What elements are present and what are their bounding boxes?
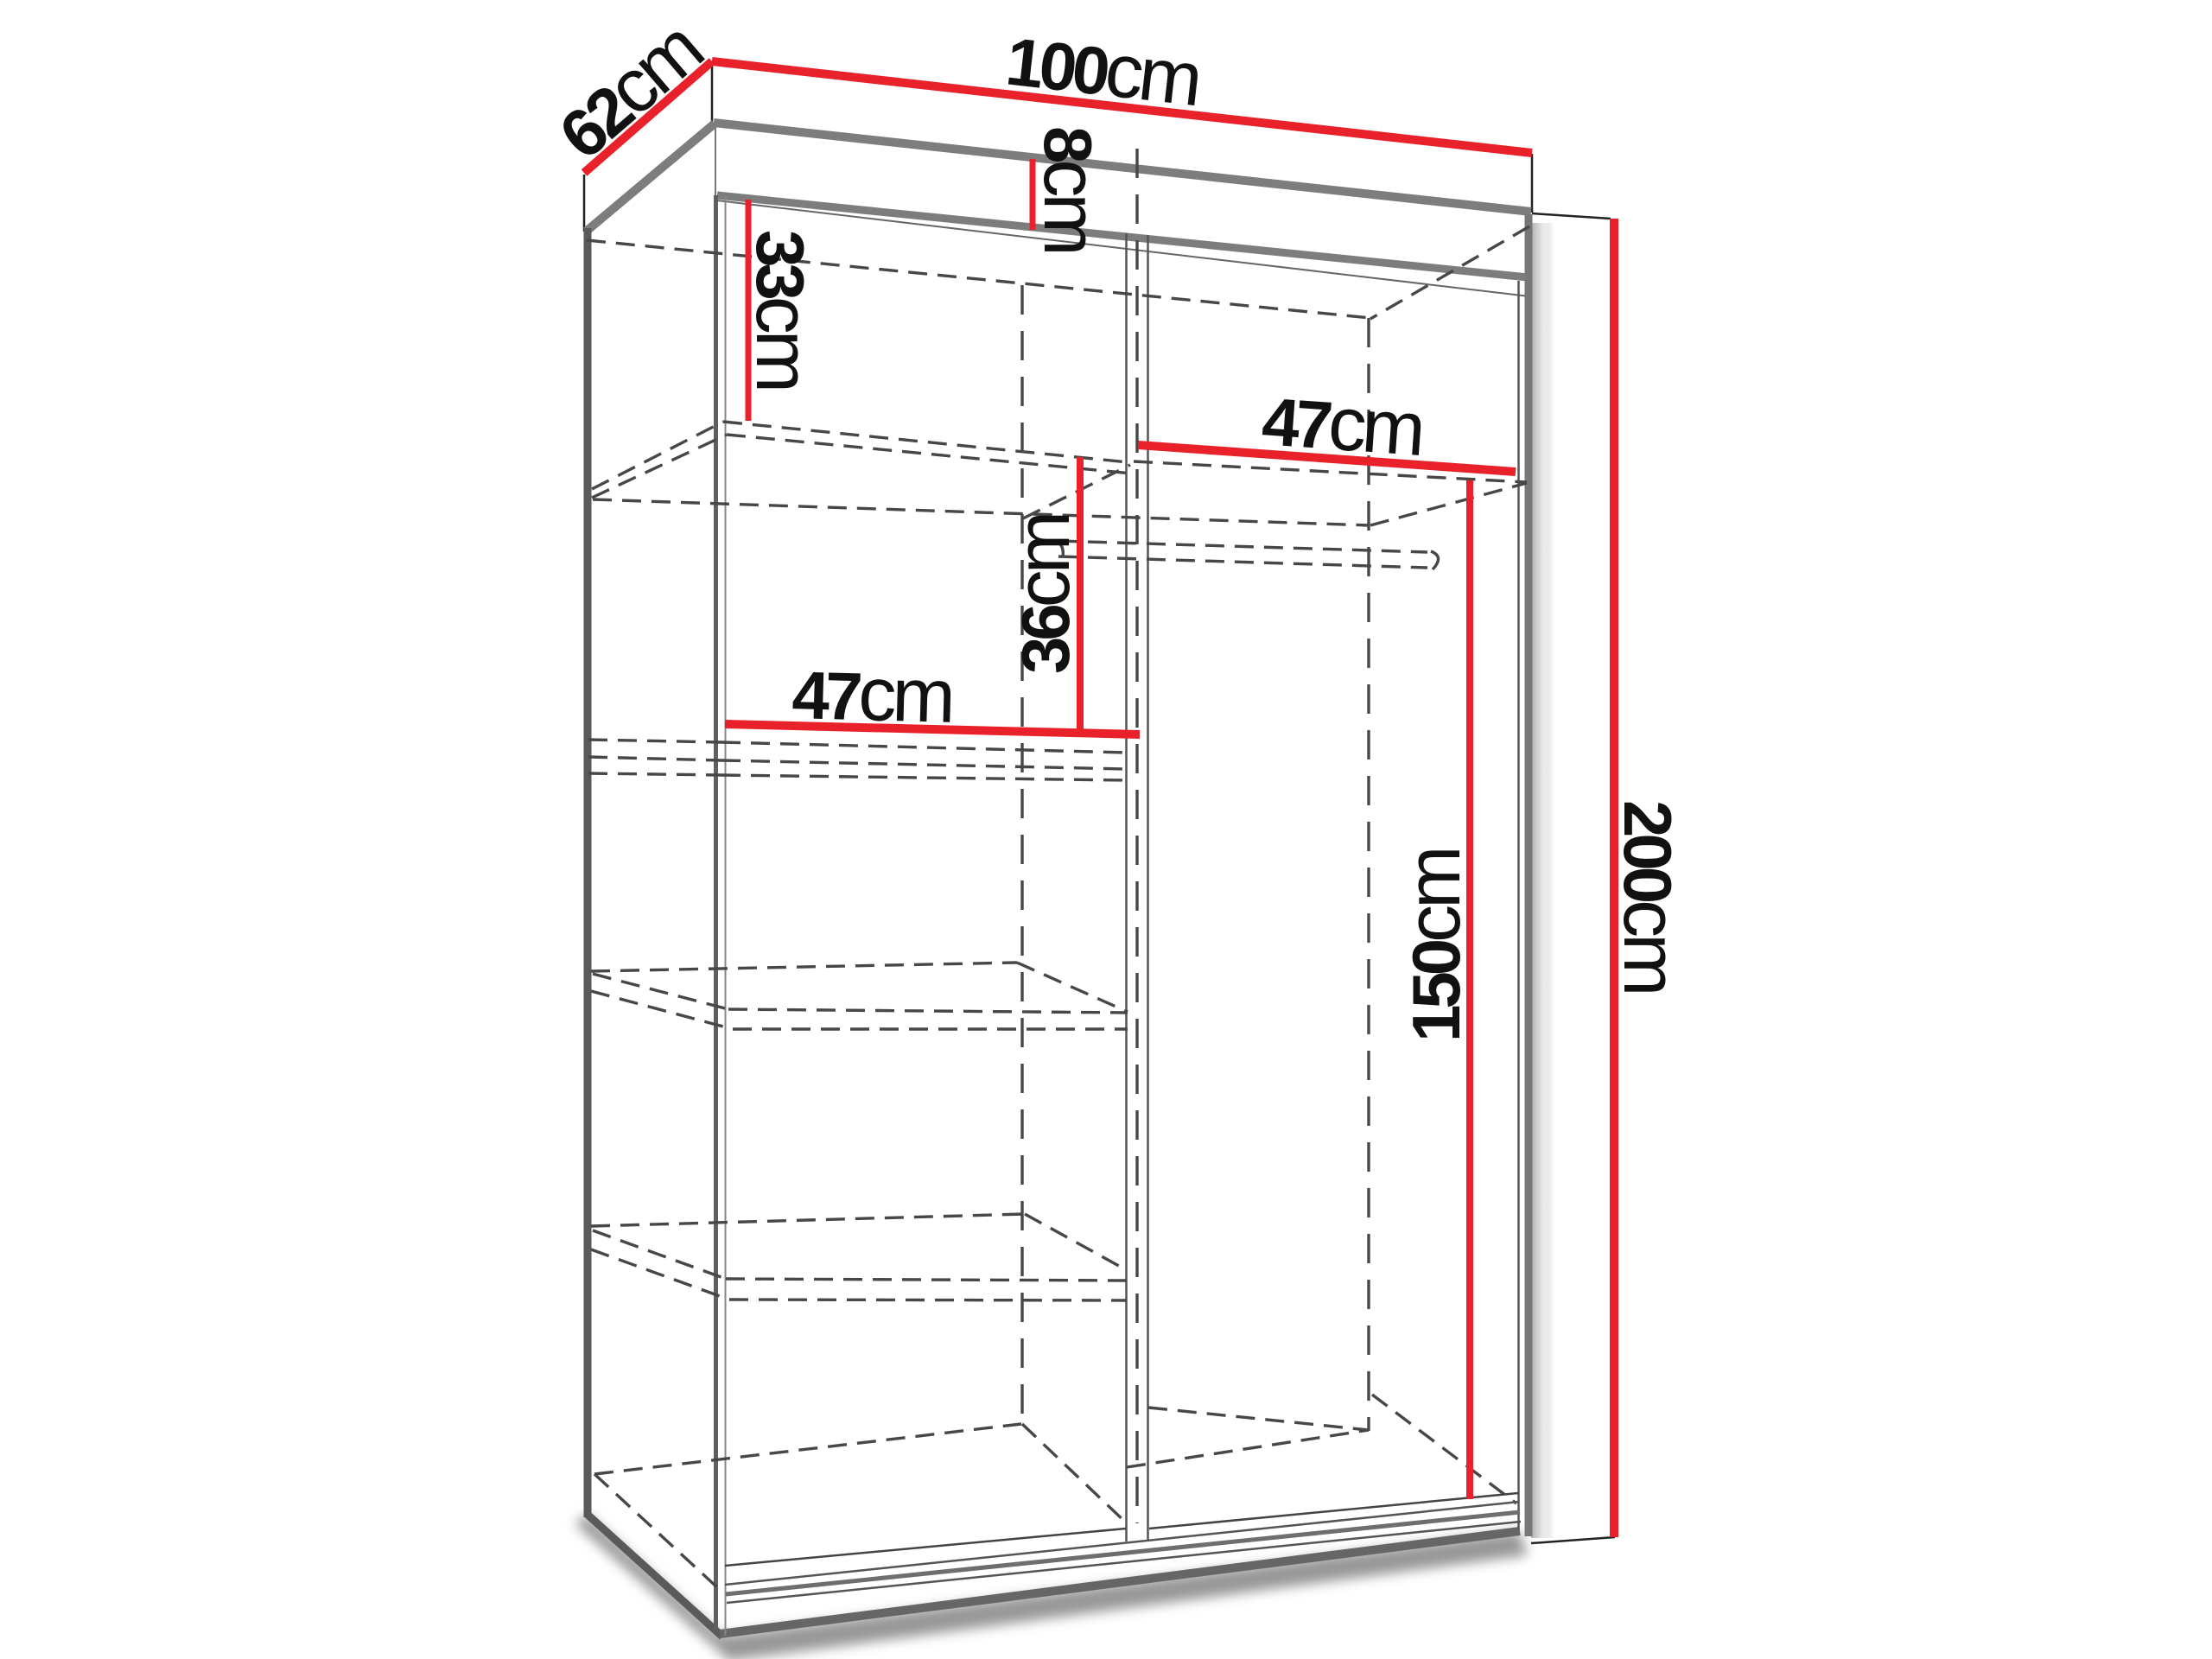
- svg-text:150cm: 150cm: [1390, 850, 1476, 1042]
- svg-text:200cm: 200cm: [1608, 800, 1694, 992]
- svg-text:47cm: 47cm: [791, 649, 953, 739]
- svg-text:33cm: 33cm: [741, 230, 826, 389]
- svg-text:36cm: 36cm: [1000, 515, 1085, 674]
- svg-text:47cm: 47cm: [1260, 375, 1425, 472]
- svg-text:8cm: 8cm: [1028, 126, 1114, 252]
